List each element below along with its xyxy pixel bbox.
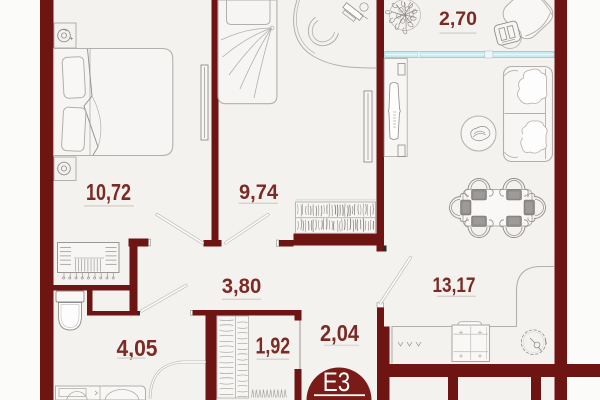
svg-text:E3: E3 bbox=[323, 367, 351, 397]
svg-text:13,17: 13,17 bbox=[433, 273, 476, 297]
svg-text:2,70: 2,70 bbox=[439, 9, 477, 30]
svg-text:4,05: 4,05 bbox=[117, 335, 158, 361]
svg-text:9,74: 9,74 bbox=[239, 181, 278, 204]
svg-text:1,92: 1,92 bbox=[256, 333, 291, 359]
svg-text:2,04: 2,04 bbox=[320, 320, 359, 346]
svg-text:3,80: 3,80 bbox=[222, 274, 262, 298]
svg-text:10,72: 10,72 bbox=[86, 179, 131, 205]
